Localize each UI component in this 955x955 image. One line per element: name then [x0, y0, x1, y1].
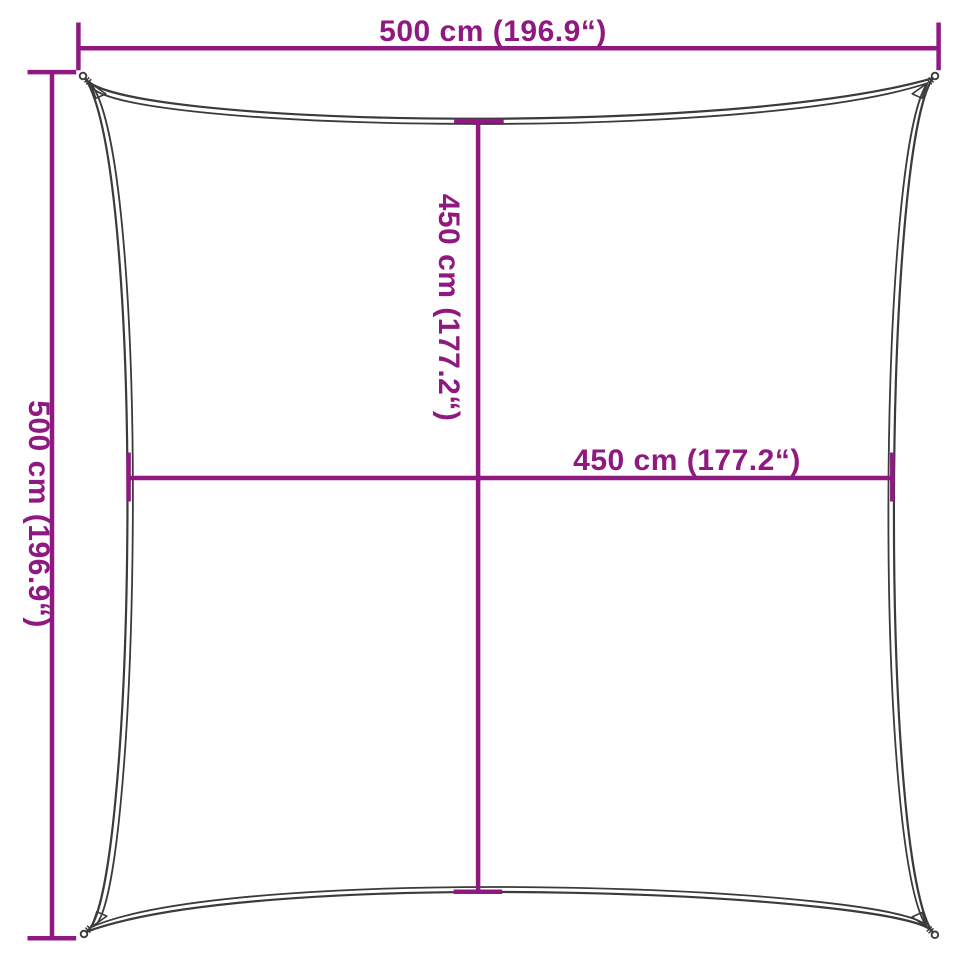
svg-text:500 cm (196.9“): 500 cm (196.9“)	[22, 400, 55, 628]
svg-text:450 cm (177.2“): 450 cm (177.2“)	[432, 194, 465, 422]
svg-text:500 cm (196.9“): 500 cm (196.9“)	[379, 15, 607, 48]
svg-text:450 cm (177.2“): 450 cm (177.2“)	[573, 444, 801, 477]
